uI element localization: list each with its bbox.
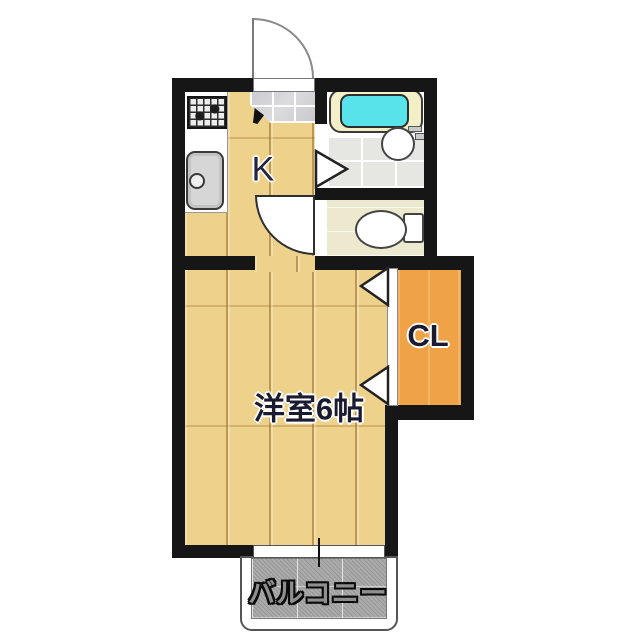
- closet-label: CL: [407, 318, 448, 354]
- entrance-door-arc: [253, 18, 314, 78]
- balcony-label: バルコニー: [248, 572, 387, 611]
- western-room-label: 洋室6帖: [254, 384, 364, 429]
- entrance-opening: [253, 78, 315, 92]
- kitchen-label: K: [252, 151, 275, 190]
- wall-right-upper: [424, 78, 437, 270]
- washbasin-icon: [381, 127, 415, 161]
- wall-closet-bottom: [385, 405, 474, 420]
- wall-bath-toilet: [315, 188, 425, 200]
- doorway-floor-patch: [255, 256, 315, 272]
- wall-mid-left: [172, 256, 255, 270]
- sink-drain-icon: [189, 173, 205, 189]
- wall-room-right: [385, 405, 398, 558]
- floor-plan: K 洋室6帖 CL バルコニー: [0, 0, 640, 640]
- bathroom-door-triangle-icon: [314, 149, 350, 189]
- wall-kitchen-bath: [315, 92, 327, 124]
- gas-stove-icon: [187, 96, 227, 129]
- wall-left: [172, 78, 185, 558]
- bathtub-water: [340, 94, 409, 128]
- closet-door-triangle-icon: [359, 266, 390, 307]
- toilet-bowl-icon: [355, 210, 407, 249]
- window-center-tick: [318, 538, 320, 567]
- wall-closet-right: [461, 256, 474, 420]
